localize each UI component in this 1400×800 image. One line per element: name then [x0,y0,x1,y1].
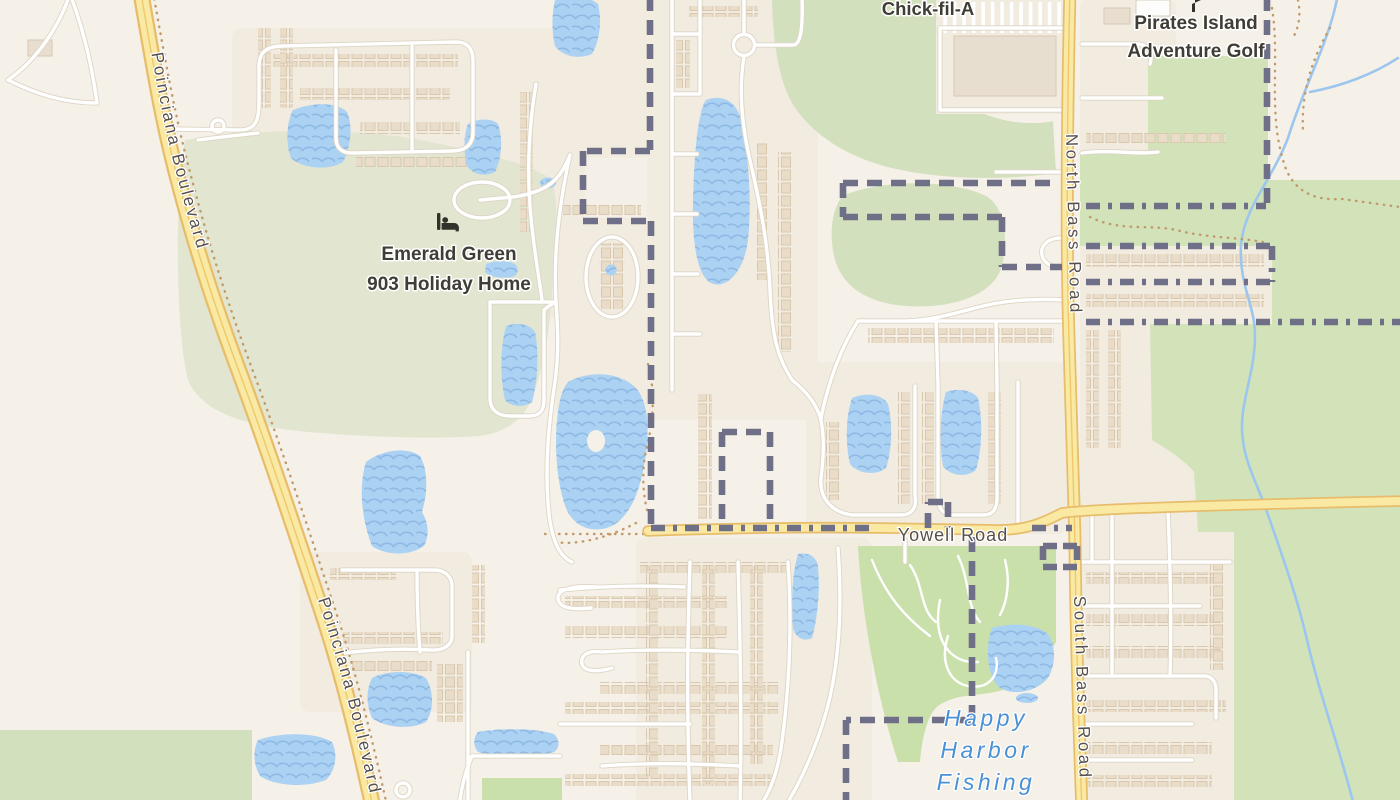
restaurant-building [954,36,1056,96]
map-canvas[interactable]: Poinciana Boulevard Poinciana Boulevard … [0,0,1400,800]
svg-text:Happy: Happy [944,705,1028,731]
svg-text:Adventure Golf: Adventure Golf [1127,41,1265,62]
svg-text:Emerald Green: Emerald Green [381,244,516,265]
poi-label-chick-fil-a[interactable]: Chick-fil-A [882,0,975,19]
road-label-yowell: Yowell Road [898,525,1008,545]
svg-text:903 Holiday Home: 903 Holiday Home [367,274,531,295]
svg-text:Fishing: Fishing [937,769,1036,795]
map-svg: Poinciana Boulevard Poinciana Boulevard … [0,0,1400,800]
park-area-mid [832,183,1005,306]
water-label-happy-harbor: Happy Harbor Fishing [937,705,1036,795]
field-area [0,730,252,800]
svg-text:Pirates Island: Pirates Island [1134,13,1258,34]
svg-text:Harbor: Harbor [940,737,1031,763]
